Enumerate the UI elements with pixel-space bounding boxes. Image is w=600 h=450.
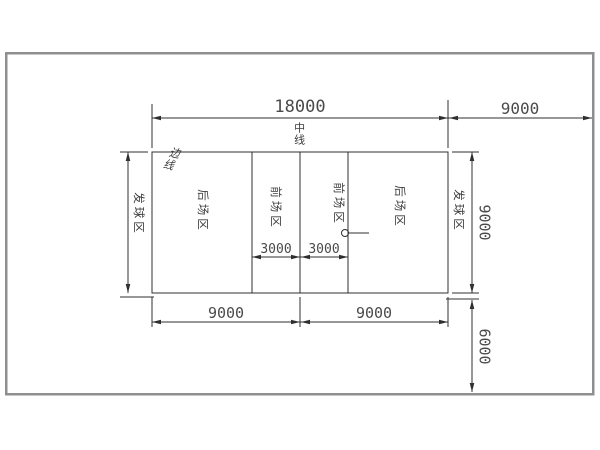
service-zone-right-label: 发球区 [452, 176, 466, 246]
dim-court-width: 9000 [477, 193, 492, 253]
dim-attack-zone-right: 3000 [294, 243, 354, 256]
dim-half-court-right: 9000 [334, 306, 414, 321]
dim-court-length: 18000 [260, 99, 340, 116]
back-zone-left-label: 后场区 [196, 176, 210, 246]
dim-free-zone-depth: 6000 [477, 317, 492, 377]
service-zone-left-label: 发球区 [132, 179, 146, 249]
front-zone-right-label: 前场区 [332, 169, 346, 239]
front-zone-left-label: 前场区 [269, 173, 283, 243]
drawing-canvas [0, 0, 600, 450]
dim-side-zone-width: 9000 [480, 101, 560, 117]
dim-half-court-left: 9000 [186, 306, 266, 321]
dim-6000-right-lines [446, 299, 479, 392]
center-line-label: 中线 [292, 122, 305, 146]
cad-drawing-stage: 18000 9000 9000 9000 3000 3000 9000 6000… [0, 0, 600, 450]
dimension-arrowheads [126, 116, 592, 392]
back-zone-right-label: 后场区 [393, 172, 407, 242]
